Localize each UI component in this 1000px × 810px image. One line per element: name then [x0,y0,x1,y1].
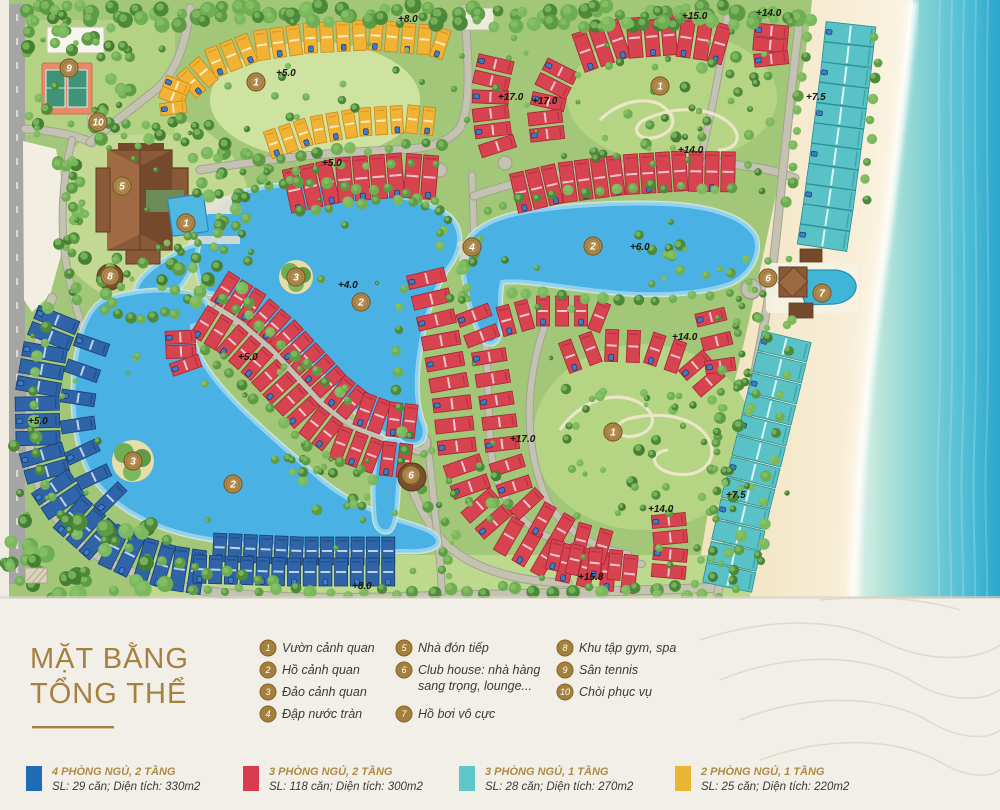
svg-text:1: 1 [610,428,616,439]
svg-text:3: 3 [293,273,299,284]
svg-text:Sân tennis: Sân tennis [579,663,638,677]
svg-text:3: 3 [265,687,270,697]
svg-text:3 PHÒNG NGỦ, 1 TẦNG: 3 PHÒNG NGỦ, 1 TẦNG [485,765,609,778]
svg-text:+8.0: +8.0 [352,581,372,592]
svg-text:MẶT BẰNG: MẶT BẰNG [30,641,189,675]
svg-text:TỔNG THỂ: TỔNG THỂ [30,676,187,710]
svg-text:Đập nước tràn: Đập nước tràn [282,707,362,721]
svg-text:+8.0: +8.0 [398,14,418,25]
svg-text:3 PHÒNG NGỦ, 2 TẦNG: 3 PHÒNG NGỦ, 2 TẦNG [269,765,393,778]
svg-text:4: 4 [265,709,270,719]
svg-text:4: 4 [468,243,475,254]
svg-text:+17.0: +17.0 [510,434,536,445]
svg-text:10: 10 [92,118,104,129]
svg-text:1: 1 [253,78,259,89]
svg-text:+14.0: +14.0 [672,332,698,343]
svg-text:+17.0: +17.0 [498,92,524,103]
svg-text:+7.5: +7.5 [726,490,746,501]
svg-text:Club house: nhà hàng: Club house: nhà hàng [418,663,540,677]
svg-text:+14.0: +14.0 [648,504,674,515]
svg-text:+15.8: +15.8 [578,572,604,583]
svg-text:Vườn cảnh quan: Vườn cảnh quan [282,641,375,655]
svg-text:6: 6 [408,471,414,482]
svg-text:2: 2 [229,480,236,491]
svg-text:Hồ bơi vô cực: Hồ bơi vô cực [418,707,496,721]
svg-text:Nhà đón tiếp: Nhà đón tiếp [418,641,489,655]
svg-text:6: 6 [765,274,771,285]
svg-text:Chòi phục vụ: Chòi phục vụ [579,685,652,699]
svg-text:+14.0: +14.0 [756,8,782,19]
svg-text:+5.0: +5.0 [238,352,258,363]
svg-text:8: 8 [562,643,567,653]
svg-text:Hồ cảnh quan: Hồ cảnh quan [282,663,360,677]
svg-text:2: 2 [264,665,270,675]
svg-text:Đảo cảnh quan: Đảo cảnh quan [282,685,367,699]
svg-text:9: 9 [562,665,567,675]
svg-text:Khu tập gym, spa: Khu tập gym, spa [579,641,676,655]
svg-text:sang trọng, lounge...: sang trọng, lounge... [418,679,532,693]
svg-text:SL: 25 căn; Diện tích: 220m2: SL: 25 căn; Diện tích: 220m2 [701,781,850,793]
svg-text:+6.0: +6.0 [630,242,650,253]
svg-text:1: 1 [657,82,663,93]
svg-text:10: 10 [560,687,570,697]
svg-text:6: 6 [401,665,406,675]
svg-text:+7.5: +7.5 [806,92,826,103]
svg-text:5: 5 [119,182,125,193]
svg-text:+14.0: +14.0 [678,145,704,156]
svg-text:1: 1 [183,219,189,230]
svg-text:+5.0: +5.0 [276,68,296,79]
svg-text:2: 2 [357,298,364,309]
svg-text:+5.0: +5.0 [28,416,48,427]
svg-text:+5.0: +5.0 [322,158,342,169]
svg-text:1: 1 [265,643,270,653]
svg-text:8: 8 [107,272,113,283]
svg-text:4 PHÒNG NGỦ, 2 TẦNG: 4 PHÒNG NGỦ, 2 TẦNG [51,765,176,778]
svg-text:7: 7 [819,289,825,300]
svg-text:2: 2 [589,242,596,253]
svg-text:SL: 29 căn; Diện tích: 330m2: SL: 29 căn; Diện tích: 330m2 [52,781,201,793]
svg-text:+15.0: +15.0 [682,11,708,22]
svg-text:2 PHÒNG NGỦ, 1 TẦNG: 2 PHÒNG NGỦ, 1 TẦNG [700,765,825,778]
svg-text:SL: 28 căn; Diện tích: 270m2: SL: 28 căn; Diện tích: 270m2 [485,781,634,793]
svg-text:+17.0: +17.0 [532,96,558,107]
svg-text:SL: 118 căn; Diện tích: 300m2: SL: 118 căn; Diện tích: 300m2 [269,781,423,793]
svg-text:3: 3 [130,457,136,468]
svg-text:9: 9 [66,64,72,75]
svg-text:+4.0: +4.0 [338,280,358,291]
